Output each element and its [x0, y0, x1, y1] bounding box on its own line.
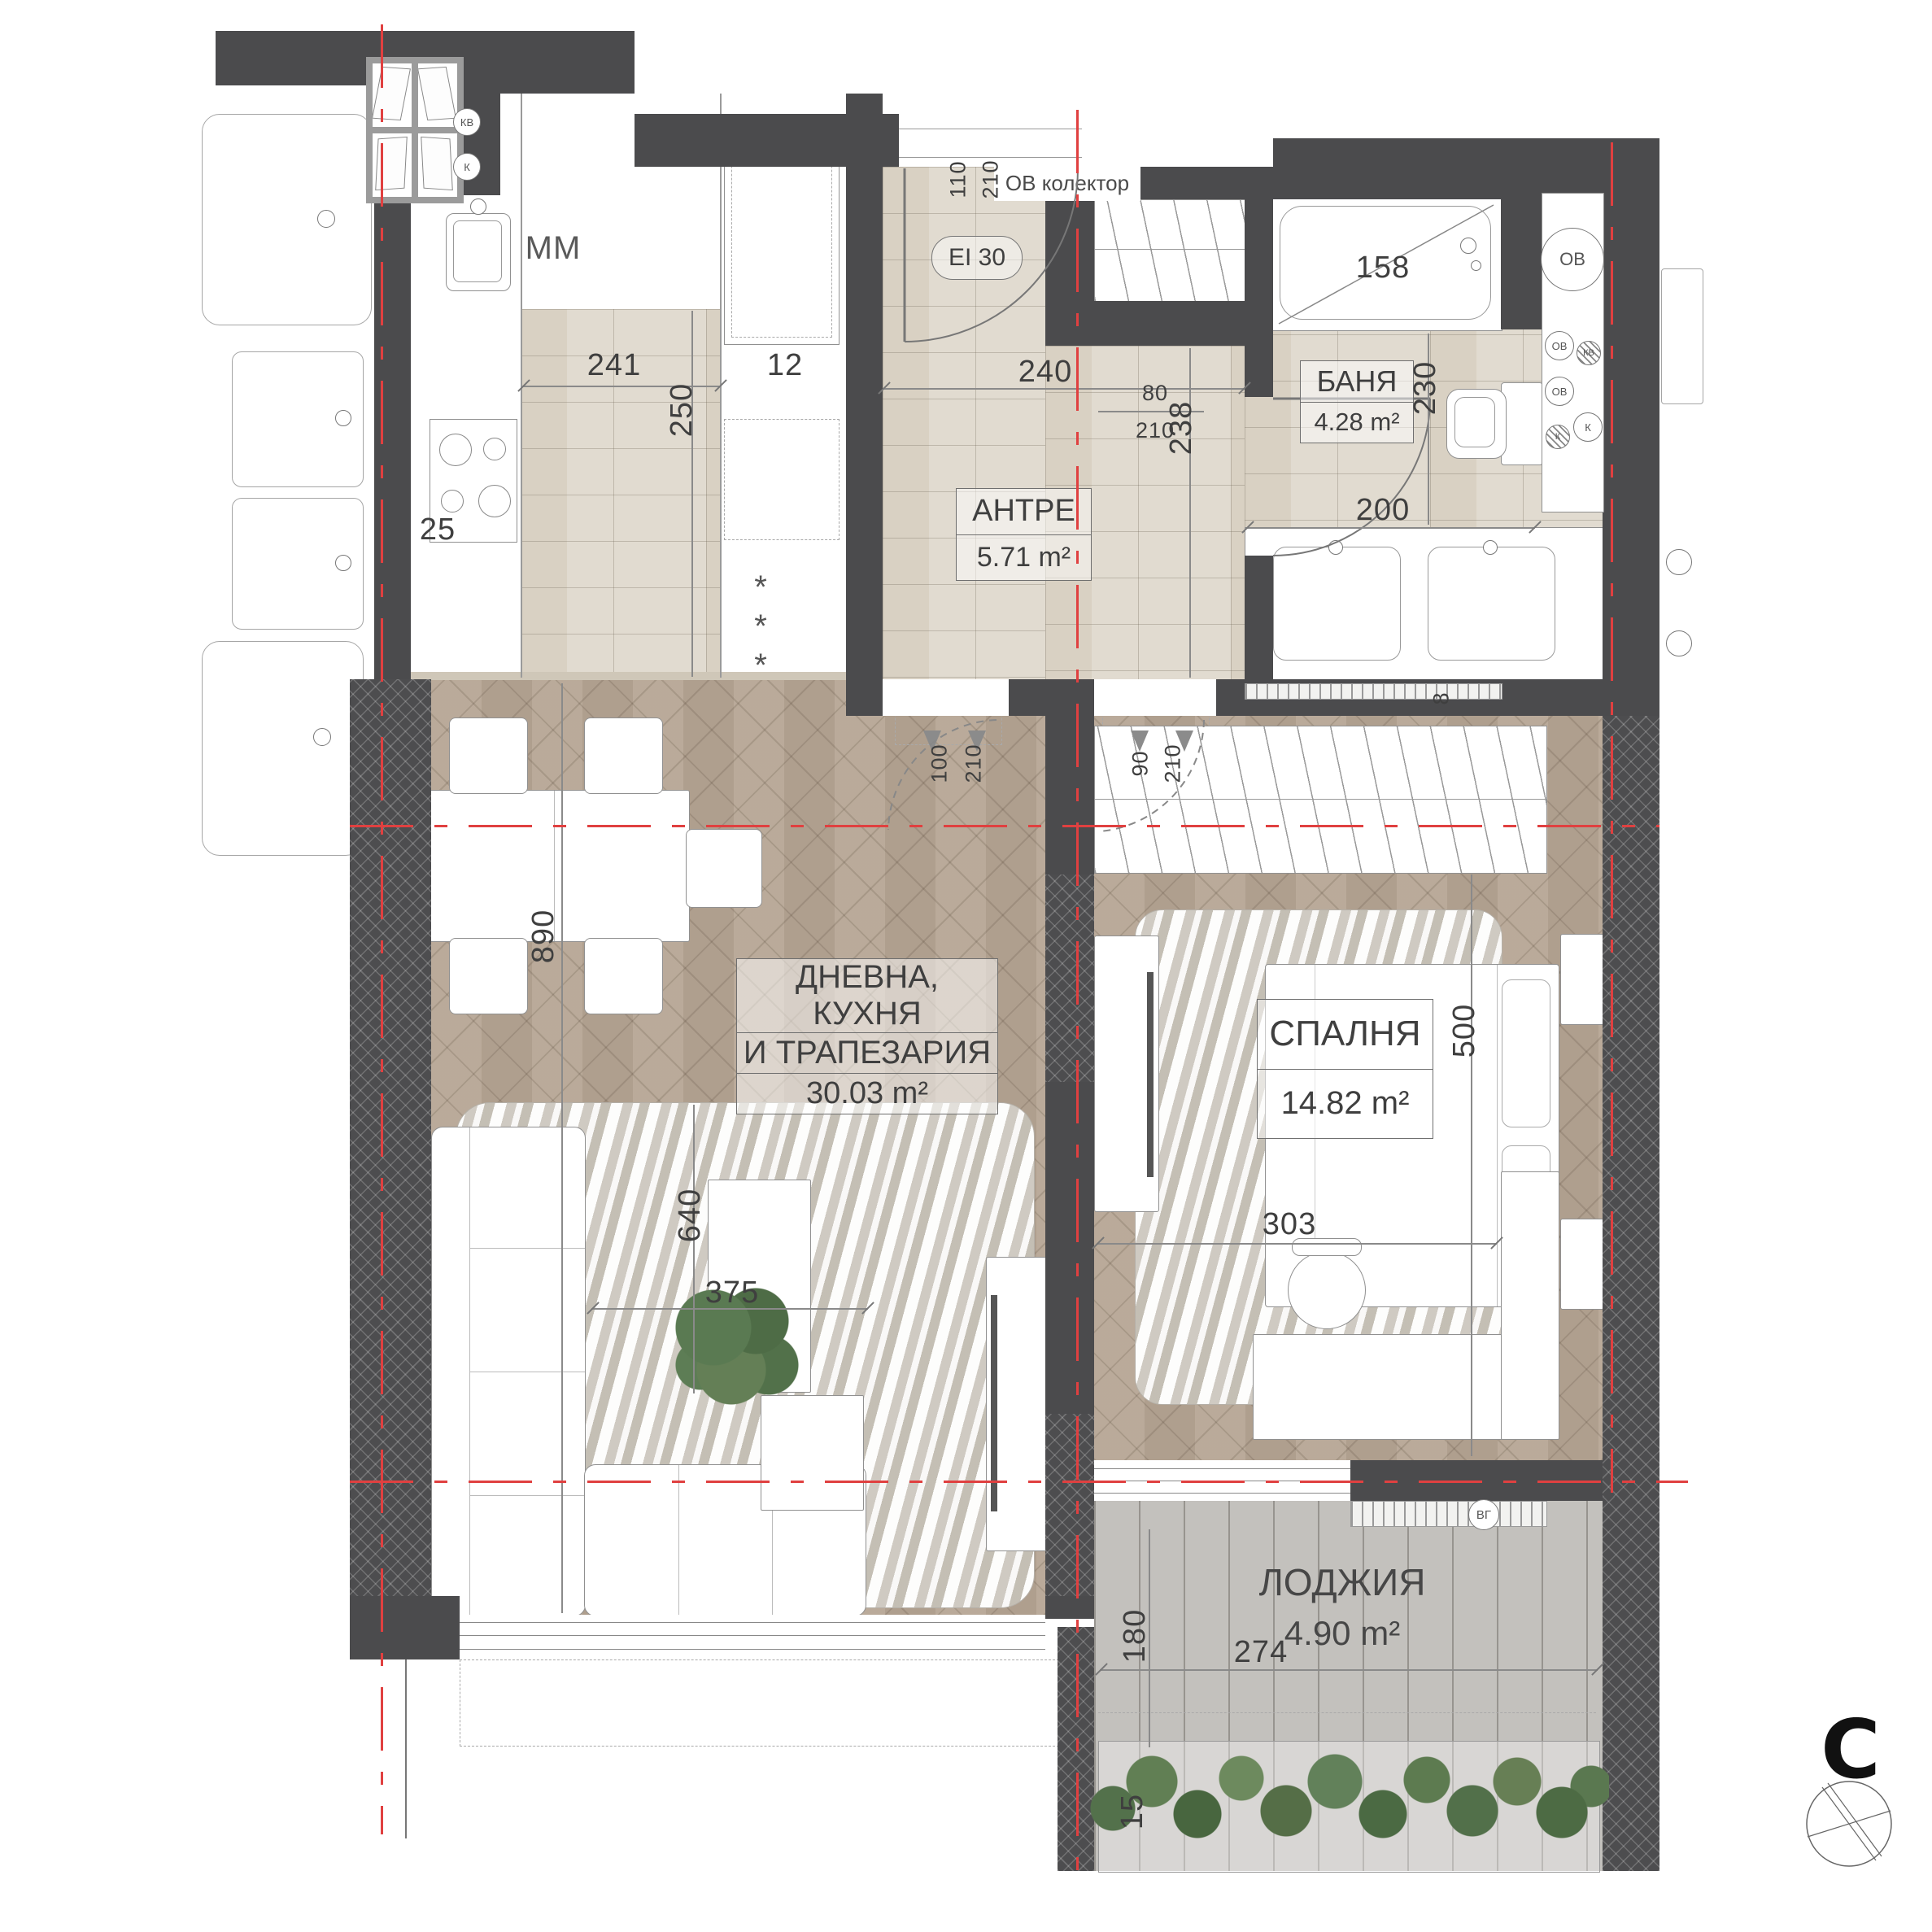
vanity-sink-2	[1428, 547, 1555, 661]
collector-label-box: ОВ колектор	[994, 165, 1140, 201]
dim-25: 25	[405, 514, 470, 545]
burner-1	[439, 434, 472, 466]
dimline-890	[561, 683, 563, 1613]
loggia-insulation-strip	[1350, 1501, 1547, 1527]
neighbor-fixture-right-3	[1666, 630, 1692, 656]
dimline-200	[1246, 527, 1535, 529]
neighbor-bathtub-2	[202, 641, 364, 856]
dim-15: 15	[1117, 1779, 1148, 1844]
loggia-name: ЛОДЖИЯ	[1212, 1560, 1472, 1604]
dim-living-door-w: 100	[929, 739, 951, 788]
wall-bath-left-upper	[1245, 195, 1273, 397]
shaft-symbol-k: К	[1573, 412, 1603, 442]
wall-below-closet	[1094, 301, 1245, 346]
vanity-faucet-1	[1328, 540, 1343, 555]
section-line-vertical-middle	[1076, 110, 1079, 1871]
north-label: С	[1794, 1702, 1908, 1797]
compass-cross-line	[1808, 1811, 1891, 1837]
dim-bedroom-door-w: 90	[1130, 739, 1152, 788]
shaft-symbol-kv: КВ	[1577, 341, 1601, 365]
bathtub-knob	[1471, 260, 1481, 271]
bathtub-faucet	[1460, 238, 1476, 254]
dim-entry-door-h: 210	[980, 155, 1002, 204]
wall-left-lower	[350, 679, 431, 1619]
living-name-line1: ДНЕВНА, КУХНЯ	[737, 959, 997, 1032]
window-vent-kv-label: КВ	[460, 116, 473, 129]
window-vent-symbol-kv: КВ	[453, 108, 481, 136]
dining-chair-4	[584, 938, 663, 1014]
neighbor-faucet-1	[317, 210, 335, 228]
wall-kitchen-top	[500, 31, 635, 94]
shaft-kv-label: КВ	[1583, 348, 1594, 358]
kitchen-window-pane-3	[373, 133, 412, 197]
neighbor-bathtub-1	[202, 114, 372, 325]
bedroom-window-line-3	[1094, 1493, 1350, 1494]
planter-greenery	[1088, 1731, 1609, 1882]
dim-230: 230	[1410, 343, 1441, 433]
dim-250: 250	[666, 365, 697, 455]
section-line-horizontal-lower	[350, 1481, 1688, 1483]
burner-2	[483, 438, 506, 460]
dim-living-door-h: 210	[963, 739, 985, 788]
dim-12: 12	[757, 350, 813, 381]
living-tv-screen	[991, 1295, 997, 1511]
bedroom-label-box: СПАЛНЯ 14.82 m²	[1257, 999, 1433, 1139]
desk-cabinet	[1501, 1171, 1559, 1440]
dim-180: 180	[1119, 1591, 1150, 1681]
bedroom-name: СПАЛНЯ	[1258, 1000, 1433, 1069]
kitchen-window-pane-1	[373, 63, 412, 127]
living-window-line-2	[460, 1635, 1045, 1636]
kitchen-faucet	[470, 198, 486, 215]
section-line-horizontal-upper	[350, 825, 1659, 827]
dim-bedroom-door-h: 210	[1162, 739, 1184, 788]
living-name-line2: И ТРАПЕЗАРИЯ	[737, 1032, 997, 1073]
planter-dashed-line	[1098, 1712, 1596, 1713]
neighbor-fixture-right-1	[1661, 268, 1703, 404]
section-line-vertical-left	[381, 24, 383, 1834]
entrance-frame-line-1	[899, 129, 1082, 129]
shaft-ov-large-label: ОВ	[1559, 249, 1585, 270]
wall-kitchen-entry	[846, 94, 883, 716]
toilet-bowl	[1446, 389, 1507, 459]
wall-bottom-left-stub	[350, 1596, 460, 1659]
window-vent-symbol-k: К	[453, 153, 481, 181]
dim-bath-door-w: 80	[1127, 382, 1184, 404]
dim-500: 500	[1449, 986, 1480, 1075]
shaft-k-label: К	[1585, 421, 1591, 434]
entry-label-box: АНТРЕ 5.71 m²	[956, 488, 1092, 581]
dim-entry-door-w: 110	[948, 155, 970, 204]
wall-bath-left-lower	[1245, 556, 1273, 679]
wall-bath-top	[1273, 138, 1603, 199]
shaft-symbol-ov-large: ОВ	[1541, 228, 1604, 291]
dimline-500	[1471, 874, 1472, 1456]
neighbor-fixture-right-2	[1666, 549, 1692, 575]
vg-symbol: ВГ	[1468, 1499, 1499, 1530]
dimline-274	[1100, 1669, 1598, 1671]
floor-plan: КВ К ВГ *** ОВ колектор ОВ ОВ КВ ОВ К К	[0, 0, 1932, 1932]
entry-area: 5.71 m²	[957, 534, 1091, 581]
living-area: 30.03 m²	[737, 1073, 997, 1114]
wall-reference-line	[405, 1659, 407, 1838]
wall-tub-stub	[1501, 195, 1542, 329]
bath-area: 4.28 m²	[1301, 402, 1413, 443]
wall-pillar-doors	[1009, 679, 1045, 716]
kitchen-sink	[446, 213, 511, 291]
shaft-symbol-ov-3: ОВ	[1545, 377, 1574, 406]
toilet-tank	[1501, 382, 1543, 465]
dining-chair-5	[686, 829, 762, 908]
fridge-symbol: ***	[742, 569, 778, 687]
living-label-box: ДНЕВНА, КУХНЯ И ТРАПЕЗАРИЯ 30.03 m²	[736, 958, 998, 1114]
bedroom-tv-screen	[1147, 972, 1154, 1177]
collector-closet	[1094, 199, 1246, 303]
wall-right-loggia	[1603, 1497, 1659, 1871]
bedroom-window-line-1	[1094, 1468, 1350, 1469]
nightstand-1	[1560, 934, 1604, 1025]
dim-158: 158	[1346, 252, 1420, 283]
vg-label: ВГ	[1476, 1508, 1491, 1522]
dim-200: 200	[1346, 495, 1420, 526]
vanity-sink-1	[1273, 547, 1401, 661]
shaft-symbol-k-hatched: К	[1546, 425, 1570, 449]
shaft-ov-3-label: ОВ	[1552, 386, 1568, 398]
living-window	[460, 1615, 1045, 1657]
window-vent-k-label: К	[464, 161, 470, 173]
shaft-symbol-ov-2: ОВ	[1545, 331, 1574, 360]
dining-chair-2	[584, 717, 663, 794]
neighbor-faucet-4	[313, 728, 331, 746]
shaft-ov-2-label: ОВ	[1552, 340, 1568, 352]
neighbor-faucet-3	[335, 555, 351, 571]
vanity-faucet-2	[1483, 540, 1498, 555]
living-window-line-3	[460, 1649, 1045, 1650]
dim-640: 640	[674, 1171, 705, 1260]
dim-375: 375	[696, 1277, 769, 1308]
neighbor-faucet-2	[335, 410, 351, 426]
shaft-k-hatched-label: К	[1555, 432, 1560, 442]
section-line-vertical-right	[1611, 142, 1613, 1493]
dim-241: 241	[569, 350, 659, 381]
entry-name: АНТРЕ	[957, 489, 1091, 534]
floor-transition-strip	[411, 672, 846, 680]
bath-label-box: БАНЯ 4.28 m²	[1300, 360, 1414, 443]
desk-chair	[1288, 1251, 1366, 1329]
dim-303: 303	[1245, 1209, 1334, 1240]
fire-rating-label: EI 30	[949, 244, 1005, 272]
bath-name: БАНЯ	[1301, 361, 1413, 402]
fire-rating-badge: EI 30	[931, 236, 1023, 280]
balcony-dashed-outline	[460, 1659, 1084, 1747]
compass-needle-1	[1822, 1787, 1876, 1860]
bedroom-door-opening	[1094, 679, 1216, 716]
sofa-long-section	[431, 1127, 586, 1616]
wall-middle-insulated-2	[1045, 1414, 1094, 1596]
dining-chair-1	[449, 717, 528, 794]
dining-chair-3	[449, 938, 528, 1014]
bedroom-area: 14.82 m²	[1258, 1069, 1433, 1139]
bath-insulation-strip	[1245, 683, 1502, 700]
burner-4	[478, 485, 511, 517]
living-window-line-1	[460, 1622, 1045, 1623]
desk	[1253, 1334, 1502, 1440]
burner-3	[441, 490, 464, 512]
dim-8: 8	[1431, 683, 1453, 715]
dimline-303	[1097, 1243, 1497, 1245]
kitchen-window-pane-4	[418, 133, 457, 197]
wall-middle-insulated-1	[1045, 874, 1094, 1082]
kitchen-window-pane-2	[418, 63, 457, 127]
living-door-opening	[883, 679, 1009, 716]
dishwasher-dashed	[724, 419, 840, 540]
collector-label: ОВ колектор	[1005, 171, 1129, 196]
nightstand-2	[1560, 1219, 1604, 1310]
kitchen-mm-label: ММ	[521, 232, 586, 264]
dim-bath-door-h: 210	[1123, 420, 1188, 442]
dim-274: 274	[1216, 1637, 1306, 1668]
dim-890: 890	[528, 892, 559, 981]
